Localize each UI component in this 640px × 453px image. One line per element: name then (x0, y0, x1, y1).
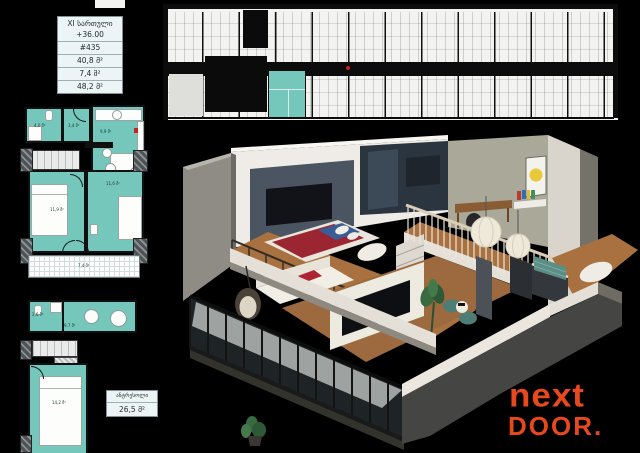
door-arc (70, 174, 83, 187)
area-label: 11,9 მ² (50, 208, 64, 212)
bed-line (40, 388, 81, 389)
plan-fragment (95, 0, 125, 8)
plan-wall (163, 4, 168, 120)
plan-2d-upper: 4,0 მ² 3,4 მ² 9,9 მ² 11,9 მ² 11,6 მ² 7,4… (20, 100, 152, 280)
area-label: 14,2 მ² (52, 401, 66, 405)
area-label: 3,4 მ² (68, 124, 79, 128)
area-label: 9,9 მ² (100, 130, 111, 134)
mezzanine-info-box: ანტრესოლი 26,5 მ² (106, 390, 158, 417)
shower (28, 126, 42, 141)
plan-lobby (169, 74, 203, 116)
structural-column (133, 150, 148, 172)
next-door-logo: next DOOR. (497, 381, 625, 439)
plan-core (205, 56, 267, 112)
bed-line (32, 194, 67, 195)
shower (50, 302, 62, 313)
mezz-upper-band (28, 300, 137, 333)
unit-number: #435 (58, 41, 122, 54)
structural-column (20, 435, 32, 453)
toilet (45, 110, 53, 121)
area-label: 7,4 მ² (78, 264, 89, 268)
area-label: 11,6 მ² (106, 182, 120, 186)
plan-stair-core (243, 10, 268, 48)
area-total: 48,2 მ² (58, 80, 122, 93)
unit-inner-wall (269, 89, 305, 90)
structural-column (20, 148, 33, 172)
floor-label: XI სართული (58, 18, 122, 29)
plan-wall (163, 4, 618, 9)
plan-wall (85, 142, 113, 148)
plan-2d-mezzanine: 2,6 მ² 9,7 მ² 14,2 მ² (20, 295, 160, 453)
side-table (90, 224, 98, 235)
plan-wall (613, 6, 618, 118)
round-seat (84, 309, 99, 324)
info-floor-row: XI სართული +36.00 (58, 17, 122, 41)
area-label: 2,6 მ² (32, 313, 43, 317)
unit-info-box: XI სართული +36.00 #435 40,8 მ² 7,4 მ² 48… (57, 16, 123, 94)
plan-units-top (167, 12, 614, 62)
structural-column (20, 340, 32, 360)
logo-line-door: DOOR. (508, 413, 625, 439)
presentation-canvas: XI სართული +36.00 #435 40,8 მ² 7,4 მ² 48… (0, 0, 640, 453)
bed (39, 376, 82, 446)
stairs (32, 340, 78, 357)
plan-marker (134, 128, 138, 133)
plan-wall (62, 302, 64, 335)
unit-inner-wall (288, 89, 289, 119)
logo-line-next: next (509, 381, 625, 411)
round-seat (110, 310, 127, 327)
area-living: 40,8 მ² (58, 54, 122, 67)
mezz-bedroom (28, 363, 88, 453)
area-label: 4,0 მ² (34, 124, 45, 128)
area-balcony: 7,4 მ² (58, 67, 122, 80)
mezzanine-title: ანტრესოლი (107, 391, 157, 403)
sink (112, 110, 122, 120)
door-arc (31, 366, 44, 379)
chair (102, 148, 112, 158)
mezzanine-area: 26,5 მ² (107, 403, 157, 416)
plan-wall (167, 117, 614, 119)
elevation-label: +36.00 (58, 29, 122, 40)
highlighted-unit (268, 70, 306, 118)
stairs (29, 150, 80, 170)
sofa-bed (118, 196, 142, 240)
building-floor-plan (163, 4, 618, 120)
corridor-marker-dot (346, 66, 350, 70)
door-arc (73, 109, 86, 122)
area-label: 9,7 მ² (64, 324, 75, 328)
